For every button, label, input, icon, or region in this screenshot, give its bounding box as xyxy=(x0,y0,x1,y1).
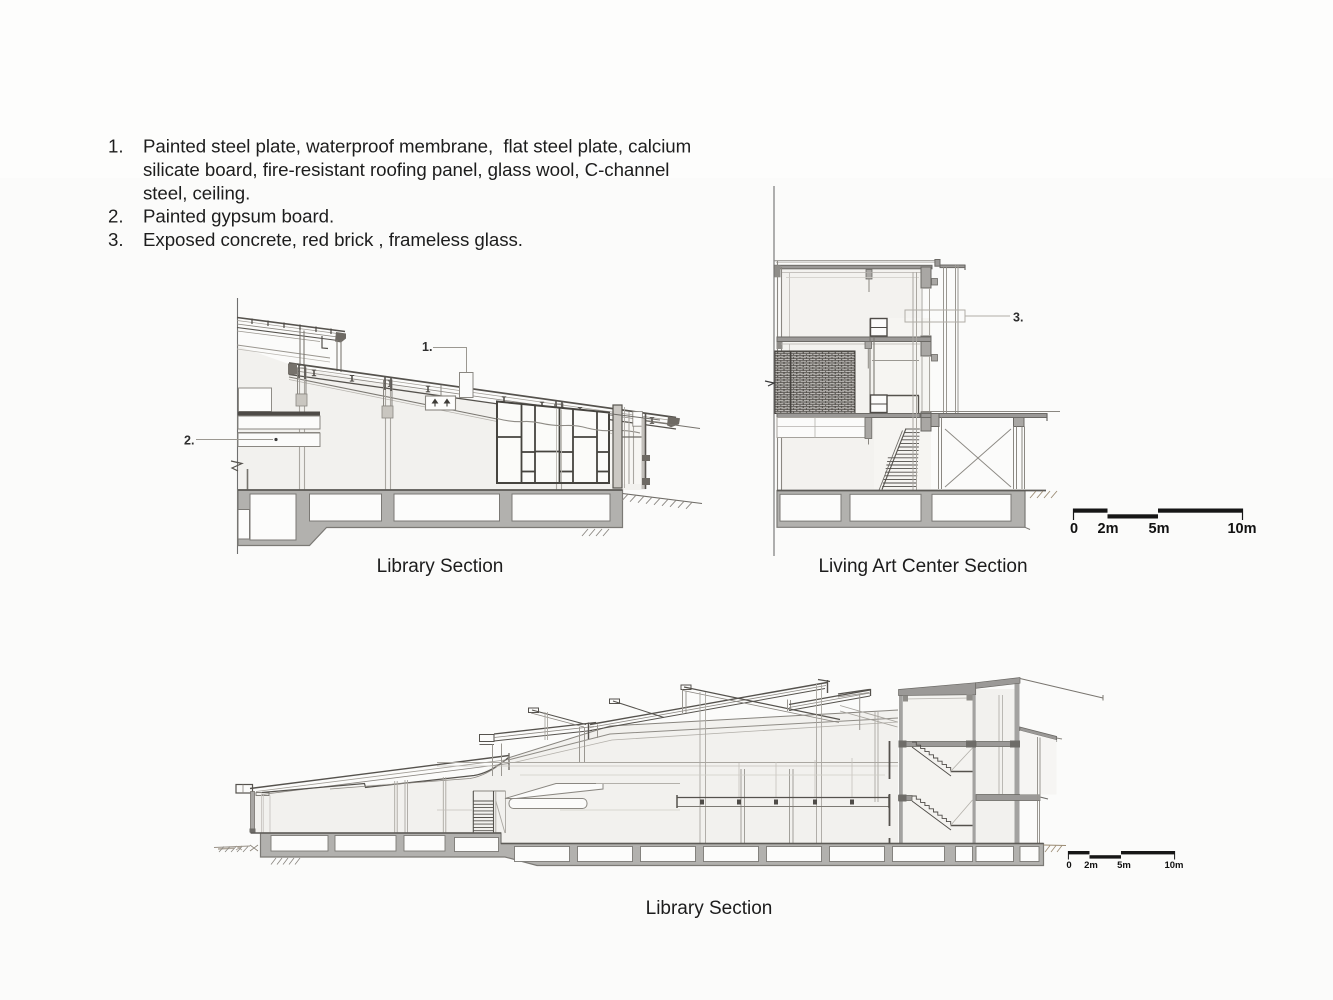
svg-text:5m: 5m xyxy=(1117,860,1131,871)
svg-text:1.: 1. xyxy=(422,340,432,354)
svg-text:Living Art Center Section: Living Art Center Section xyxy=(818,556,1027,577)
svg-text:1.: 1. xyxy=(108,136,124,157)
svg-text:silicate board, fire-resistant: silicate board, fire-resistant roofing p… xyxy=(143,159,669,180)
svg-text:2m: 2m xyxy=(1098,521,1119,537)
svg-text:0: 0 xyxy=(1066,860,1071,871)
svg-text:Painted gypsum board.: Painted gypsum board. xyxy=(143,206,334,227)
svg-text:Library Section: Library Section xyxy=(377,556,504,577)
svg-text:Library Section: Library Section xyxy=(646,898,773,919)
svg-text:10m: 10m xyxy=(1164,860,1183,871)
svg-text:0: 0 xyxy=(1070,521,1078,537)
svg-text:2m: 2m xyxy=(1084,860,1098,871)
svg-text:3.: 3. xyxy=(108,229,124,250)
svg-text:steel, ceiling.: steel, ceiling. xyxy=(143,183,250,204)
svg-text:2.: 2. xyxy=(184,434,194,448)
svg-text:5m: 5m xyxy=(1149,521,1170,537)
svg-text:10m: 10m xyxy=(1227,521,1256,537)
svg-text:Painted steel plate, waterproo: Painted steel plate, waterproof membrane… xyxy=(143,136,691,157)
svg-text:2.: 2. xyxy=(108,206,124,227)
svg-text:Exposed concrete, red brick ,: Exposed concrete, red brick , frameless … xyxy=(143,229,523,250)
svg-text:3.: 3. xyxy=(1013,311,1023,325)
